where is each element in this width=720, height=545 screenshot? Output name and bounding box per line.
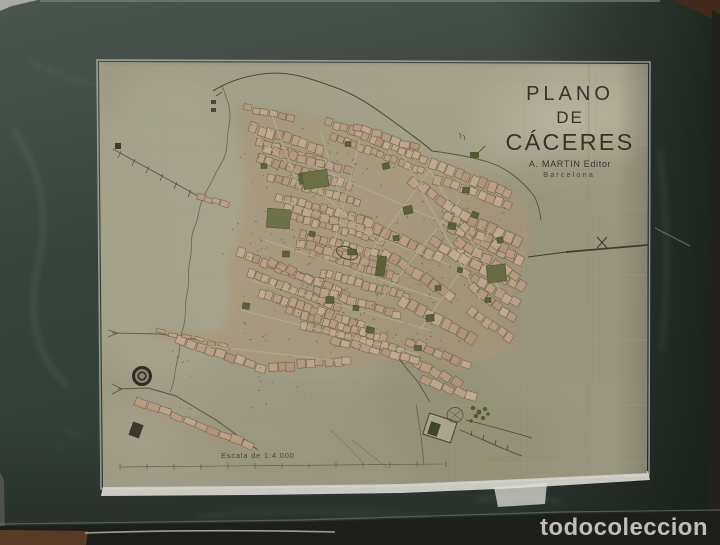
svg-text:DE: DE bbox=[556, 108, 584, 127]
svg-text:CÁCERES: CÁCERES bbox=[505, 129, 634, 155]
svg-text:PLANO: PLANO bbox=[526, 83, 614, 105]
svg-text:Escala de 1:4.000: Escala de 1:4.000 bbox=[221, 451, 295, 460]
svg-text:Barcelona: Barcelona bbox=[543, 170, 595, 179]
svg-text:todocoleccion: todocoleccion bbox=[540, 514, 708, 541]
svg-text:A. MARTIN Editor: A. MARTIN Editor bbox=[529, 159, 611, 169]
